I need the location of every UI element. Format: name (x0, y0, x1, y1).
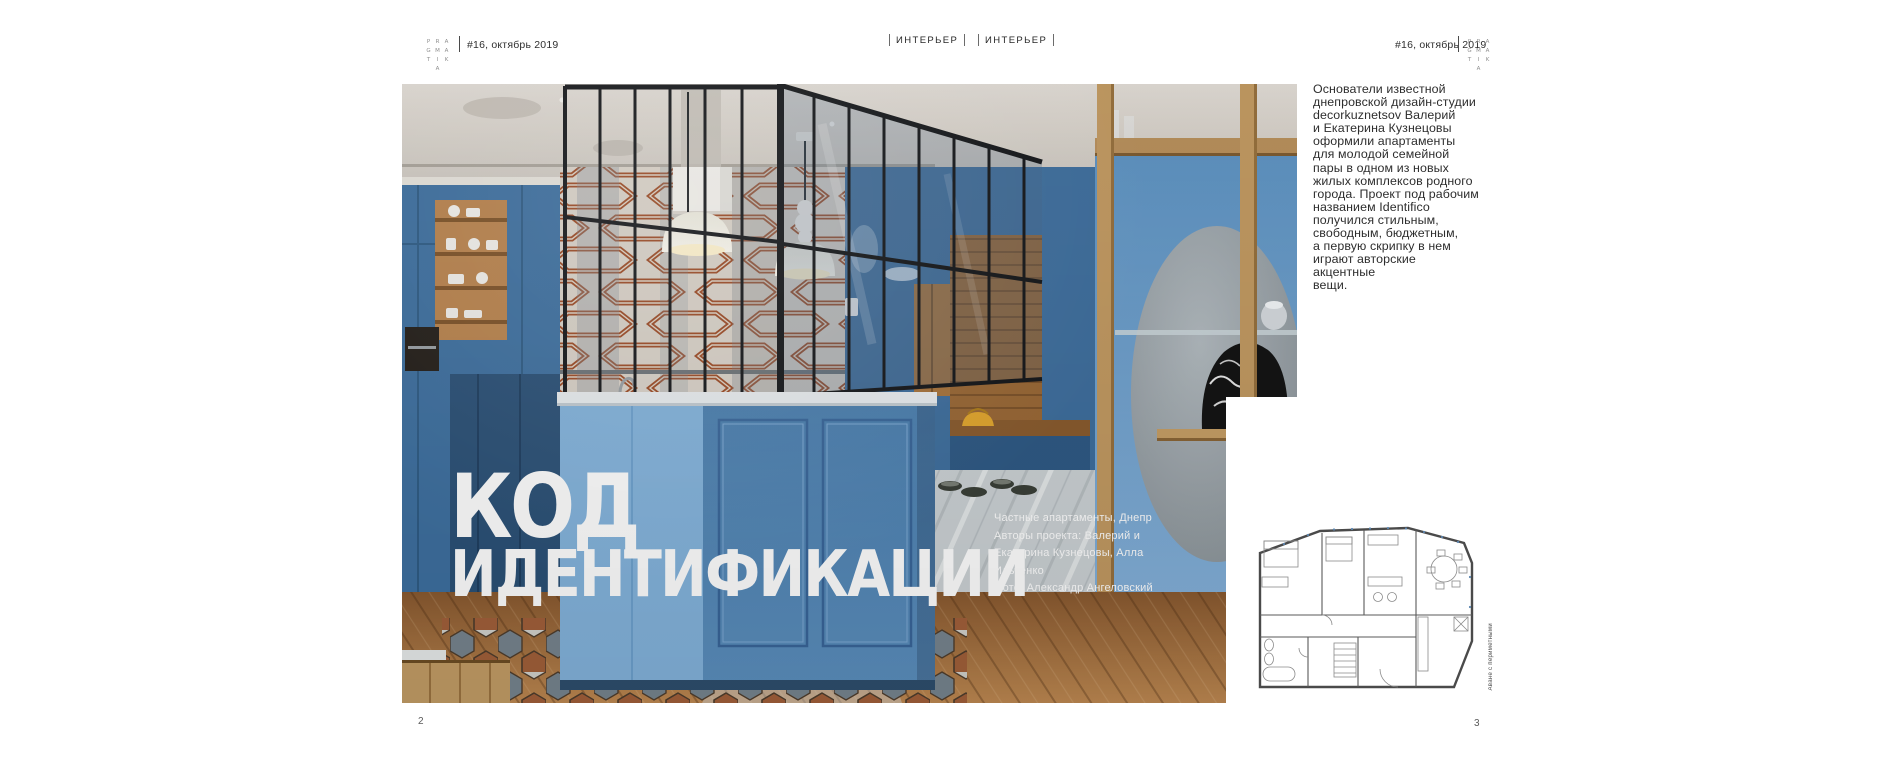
logo-letter: G (426, 48, 430, 54)
logo-letter: R (436, 39, 440, 45)
title-line-1: КОД (450, 466, 1028, 549)
logo-letter: M (1476, 48, 1481, 54)
page-number-left: 2 (418, 716, 424, 727)
credit-line: Фото: Александр Ангеловский (994, 580, 1153, 598)
logo-letter: K (1486, 57, 1490, 63)
credit-line: Частные апартаменты, Днепр (994, 510, 1153, 528)
logo-letter: A (1486, 48, 1490, 54)
logo-letter: I (437, 57, 439, 63)
floor-plan-image (1248, 517, 1486, 705)
logo-letter: A (445, 48, 449, 54)
page-number-right: 3 (1474, 718, 1480, 729)
logo-letter: I (1478, 57, 1480, 63)
logo-letter: A (445, 39, 449, 45)
pragmatika-logo: PRA GMA TIK A (424, 37, 451, 73)
title-line-2: ИДЕНТИФИКАЦИИ (450, 545, 1028, 605)
logo-letter: K (445, 57, 449, 63)
logo-letter: A (1486, 39, 1490, 45)
section-bar (889, 34, 890, 46)
header-divider (459, 36, 460, 52)
section-label-right: ИНТЕРЬЕР (978, 34, 1054, 46)
logo-letter: R (1477, 39, 1481, 45)
article-title: КОД ИДЕНТИФИКАЦИИ (450, 466, 1028, 605)
header-divider (1458, 36, 1459, 52)
issue-label-right: #16, октябрь 2019 (1395, 39, 1452, 51)
logo-letter: P (427, 39, 430, 45)
logo-letter: P (1468, 39, 1471, 45)
logo-letter: M (435, 48, 440, 54)
intro-paragraph: Основатели известной днепровской дизайн-… (1313, 83, 1480, 293)
logo-letter: A (1477, 66, 1481, 72)
section-bar (1053, 34, 1054, 46)
issue-label-left: #16, октябрь 2019 (467, 39, 558, 51)
logo-letter: T (427, 57, 430, 63)
logo-letter: G (1467, 48, 1471, 54)
section-label-text: ИНТЕРЬЕР (985, 35, 1047, 46)
section-bar (978, 34, 979, 46)
floor-plan-caption: Аване с периметными (1488, 623, 1494, 691)
photo-credits: Частные апартаменты, Днепр Авторы проект… (994, 510, 1153, 598)
credit-line: Авторы проекта: Валерий и (994, 528, 1153, 546)
credit-line: Ильченко (994, 563, 1153, 581)
pragmatika-logo: PRA GMA TIK A (1465, 37, 1492, 73)
credit-line: Екатерина Кузнецовы, Алла (994, 545, 1153, 563)
logo-letter: T (1468, 57, 1471, 63)
section-label-left: ИНТЕРЬЕР (889, 34, 965, 46)
floor-plan: Аване с периметными (1226, 397, 1526, 715)
section-label-text: ИНТЕРЬЕР (896, 35, 958, 46)
kitchen-photo: КОД ИДЕНТИФИКАЦИИ Частные апартаменты, Д… (402, 84, 1297, 703)
section-bar (964, 34, 965, 46)
logo-letter: A (436, 66, 440, 72)
